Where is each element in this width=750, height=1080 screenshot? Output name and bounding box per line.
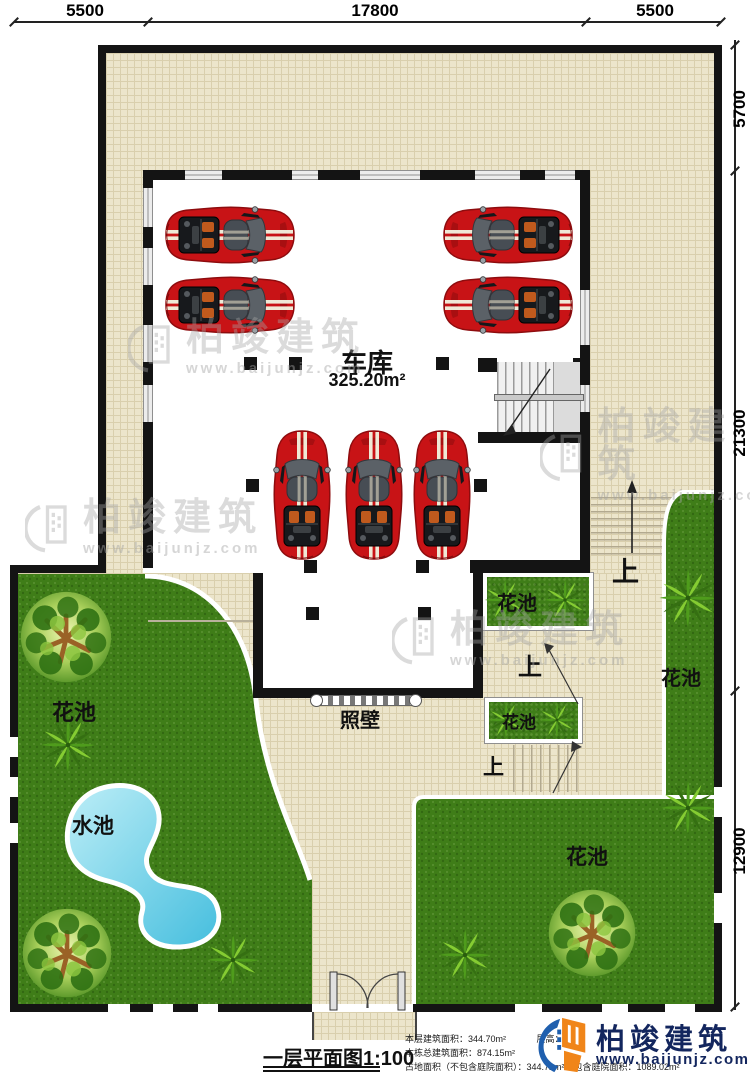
label-flower-bed: 花池 — [502, 708, 536, 733]
wall-opening — [714, 893, 722, 923]
window — [475, 170, 520, 180]
label-flower-bed: 花池 — [566, 841, 608, 871]
dim-line-top — [14, 21, 721, 23]
garden-wall-top — [10, 565, 106, 573]
wall-opening — [108, 1004, 130, 1012]
window — [360, 170, 420, 180]
sports-car — [163, 272, 297, 338]
label-up-lower: 上 — [483, 751, 504, 781]
garage-wall-bottom-right — [470, 560, 590, 573]
wall-opening — [665, 1004, 695, 1012]
sports-car — [441, 202, 575, 268]
dim-right-middle: 21300 — [730, 393, 750, 473]
info-total-area: 本栋总建筑面积：874.15m² — [405, 1046, 515, 1059]
column — [244, 357, 257, 370]
gate-walkway-outside — [312, 1012, 417, 1040]
company-logo-url: www.baijunjz.com — [596, 1051, 749, 1068]
dim-top-center: 17800 — [330, 1, 420, 21]
wall-opening — [153, 1004, 173, 1012]
wall-opening — [602, 1004, 628, 1012]
column — [436, 357, 449, 370]
window — [143, 385, 153, 422]
main-stairs-up-arrow — [620, 478, 644, 558]
dim-right-lower: 12900 — [730, 811, 750, 891]
terrace-step-line — [148, 620, 254, 622]
column — [474, 479, 487, 492]
floor-plan-canvas: 车库 325.20m² 照壁 花池 花池 花池 花池 花池 水池 上 上 上 5… — [0, 0, 750, 1080]
dim-right-upper: 5700 — [730, 69, 750, 149]
title-underline — [263, 1070, 380, 1072]
site-wall-left-upper — [98, 45, 106, 573]
garage-wall-left — [143, 170, 153, 568]
column — [418, 607, 431, 620]
tree — [20, 906, 114, 1000]
site-wall-top — [98, 45, 722, 53]
paving-left-strip — [106, 170, 143, 573]
tree — [18, 589, 114, 685]
column — [246, 479, 259, 492]
wall-opening — [10, 737, 18, 757]
mid-stairs-leader-arrow — [540, 640, 585, 710]
wall-opening — [10, 777, 18, 797]
palm-plant — [659, 779, 717, 837]
label-flower-bed: 花池 — [661, 662, 701, 691]
fern-plant — [437, 927, 493, 983]
sports-car — [163, 202, 297, 268]
window — [143, 325, 153, 362]
wall-opening — [10, 823, 18, 843]
window — [185, 170, 222, 180]
sports-car — [269, 428, 335, 562]
bush-plant — [543, 578, 587, 622]
room-area-garage: 325.20m² — [317, 370, 417, 391]
window — [143, 188, 153, 227]
lower-stairs-leader-arrow — [545, 738, 585, 798]
label-up-mid: 上 — [518, 647, 542, 682]
window — [292, 170, 318, 180]
column — [306, 607, 319, 620]
column — [304, 560, 317, 573]
site-wall-right — [714, 45, 722, 1012]
window — [545, 170, 575, 180]
sports-car — [341, 428, 407, 562]
title-underline — [263, 1066, 380, 1068]
dim-top-left: 5500 — [45, 1, 125, 21]
interior-stair-break-line — [490, 355, 590, 440]
palm-plant — [657, 567, 719, 629]
dim-top-right: 5500 — [615, 1, 695, 21]
label-water-pool: 水池 — [72, 810, 114, 840]
info-floor-area-text: 本层建筑面积：344.70m² — [405, 1034, 506, 1044]
label-screen-wall: 照壁 — [340, 704, 380, 733]
watermark-logo-icon — [25, 498, 75, 556]
window — [580, 290, 590, 345]
paving-top — [106, 53, 714, 170]
lawn-right-strip — [660, 488, 714, 795]
label-flower-bed: 花池 — [497, 587, 537, 616]
company-logo-icon — [535, 1014, 593, 1076]
column — [416, 560, 429, 573]
screen-wall-post — [310, 694, 323, 707]
forecourt-floor — [263, 568, 473, 688]
window — [143, 248, 153, 285]
label-flower-bed: 花池 — [52, 695, 96, 727]
column — [289, 357, 302, 370]
sports-car — [409, 428, 475, 562]
fern-plant — [205, 932, 261, 988]
wall-opening — [714, 787, 722, 817]
sports-car — [441, 272, 575, 338]
wall-opening — [515, 1004, 542, 1012]
gate-double-doors — [310, 935, 415, 1015]
tree — [546, 887, 638, 979]
screen-wall-post — [409, 694, 422, 707]
wall-opening — [198, 1004, 218, 1012]
